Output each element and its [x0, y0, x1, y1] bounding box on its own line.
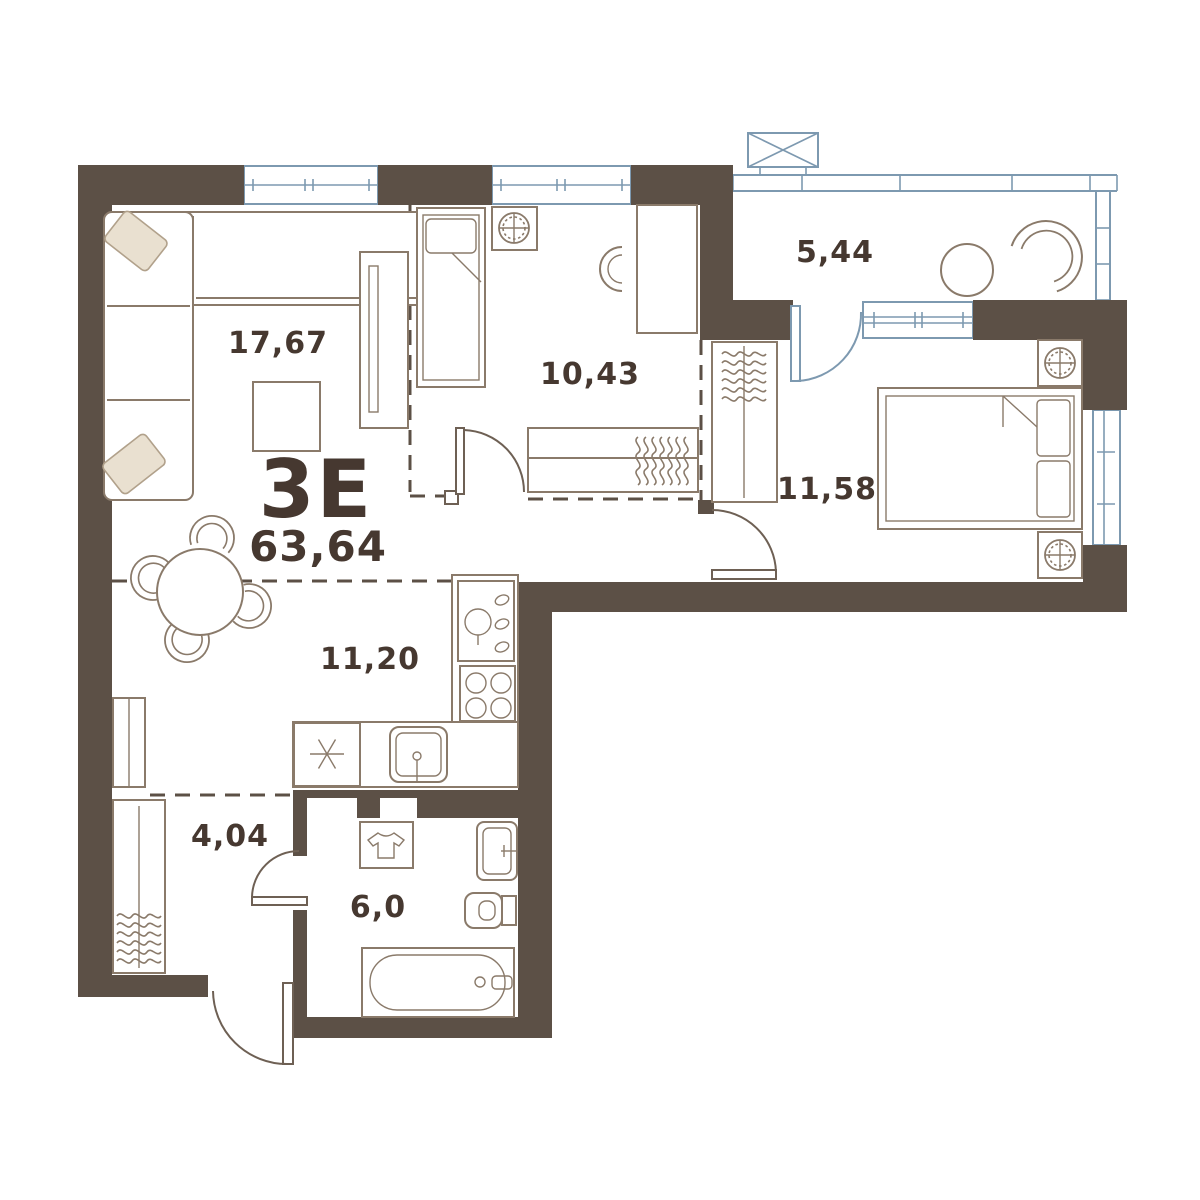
wash-basin [477, 822, 517, 880]
room-area-balcony: 5,44 [796, 235, 874, 270]
wall-niche-2 [380, 798, 417, 818]
door-bedroom-small [445, 428, 524, 504]
window-master-bedroom [1093, 410, 1120, 545]
desk-chair [600, 247, 622, 291]
door-master-bedroom [712, 510, 776, 579]
wall-niche-1 [307, 798, 357, 818]
wall-kitchen-right [518, 582, 552, 1038]
hallway [113, 698, 165, 973]
fan-lamp-icon [1045, 348, 1075, 378]
wall-bath-bottom [293, 1017, 552, 1038]
door-bathroom [252, 851, 307, 905]
door-entrance [213, 983, 293, 1064]
storage-bench [528, 428, 698, 492]
single-bed [417, 208, 485, 387]
wall-bedroom-balcony [700, 165, 733, 340]
double-bed [878, 388, 1082, 529]
corridor-wardrobe [712, 342, 777, 502]
window-balcony-master [863, 302, 973, 338]
refrigerator [294, 723, 360, 786]
kitchen [293, 575, 518, 787]
balcony [941, 206, 1097, 296]
room-area-bedroom: 10,43 [540, 357, 640, 392]
room-area-hallway: 4,04 [191, 819, 269, 854]
wall-right-upper [1083, 300, 1127, 410]
floor-plan-page: 17,67 10,43 5,44 11,58 11,20 4,04 6,0 3Е… [0, 0, 1200, 1200]
room-area-kitchen: 11,20 [320, 642, 420, 677]
floor-plan-canvas: 17,67 10,43 5,44 11,58 11,20 4,04 6,0 3Е… [0, 0, 1200, 1200]
room-area-master: 11,58 [777, 472, 877, 507]
wall-balcony-left [733, 300, 793, 340]
wall-top-b [378, 165, 492, 205]
wall-south-master [540, 582, 1127, 612]
window-bedroom [492, 166, 631, 204]
room-area-bathroom: 6,0 [350, 890, 406, 925]
desk [637, 205, 697, 333]
tv-stand [360, 252, 408, 428]
window-living [244, 166, 378, 204]
bathtub [362, 948, 514, 1017]
wall-entry-left [78, 975, 208, 997]
dining-chair [188, 512, 238, 554]
wall-bath-left-lower [293, 910, 307, 1038]
nightstand-lamp [1038, 340, 1082, 386]
balcony-table [941, 244, 993, 296]
room-area-living: 17,67 [228, 326, 328, 361]
window-cross-box-icon [748, 133, 818, 175]
nightstand-lamp [492, 207, 537, 250]
coffee-table [253, 382, 320, 451]
dining-table [157, 549, 243, 635]
balcony-chair [1009, 206, 1097, 294]
kitchen-sink [390, 727, 447, 782]
toilet [465, 893, 516, 928]
washing-machine [360, 822, 413, 868]
fan-lamp-icon [1045, 540, 1075, 570]
wall-top-a [78, 165, 244, 205]
kitchen-sink-drainer [458, 581, 514, 661]
master-bedroom [878, 340, 1082, 578]
nightstand-lamp [1038, 532, 1082, 578]
hall-wardrobe [113, 800, 165, 973]
total-area-label: 63,64 [249, 522, 387, 571]
fan-lamp-icon [499, 213, 529, 243]
hall-cabinet [113, 698, 145, 787]
stove-burners-icon [460, 666, 515, 721]
door-balcony [791, 306, 861, 381]
